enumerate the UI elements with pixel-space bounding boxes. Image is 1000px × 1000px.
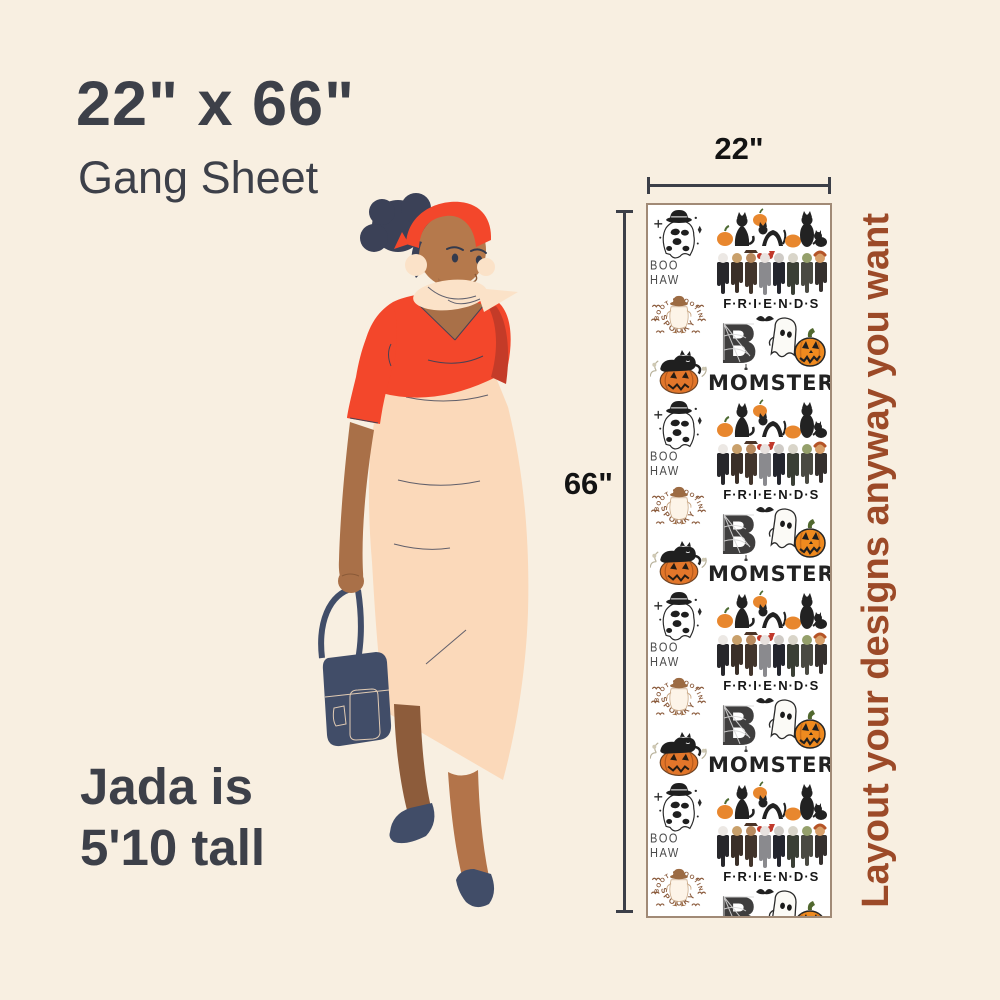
model-illustration bbox=[298, 192, 548, 957]
friends-label: F·R·I·E·N·D·S bbox=[723, 678, 819, 693]
friends-label: F·R·I·E·N·D·S bbox=[723, 869, 819, 884]
forearm bbox=[339, 422, 374, 591]
height-dimension-line bbox=[623, 210, 626, 913]
horror-characters-icon bbox=[715, 822, 827, 868]
momster-label: MOMSTER bbox=[708, 371, 832, 395]
boo-haw-label: BOO HAW bbox=[650, 450, 708, 479]
shoe-back bbox=[390, 803, 435, 843]
model-height-note: Jada is 5'10 tall bbox=[80, 756, 265, 878]
shoe-front bbox=[456, 869, 494, 907]
gang-sheet-preview: BOO HAW BOOT SCOOTIN' SPOOKY bbox=[646, 203, 832, 918]
skirt bbox=[369, 370, 528, 780]
page-subtitle: Gang Sheet bbox=[78, 152, 318, 204]
friends-label: F·R·I·E·N·D·S bbox=[723, 296, 819, 311]
boo-ghost-pumpkin-icon: B bbox=[716, 312, 826, 370]
horror-characters-icon bbox=[715, 631, 827, 677]
boo-haw-label: BOO HAW bbox=[650, 832, 708, 861]
boo-haw-ghost-icon bbox=[652, 399, 706, 450]
boo-ghost-pumpkin-icon: B bbox=[716, 885, 826, 918]
cat-on-pumpkin-icon bbox=[650, 729, 708, 778]
page-title: 22" x 66" bbox=[76, 68, 355, 140]
leg-front bbox=[448, 770, 489, 884]
width-dimension-line bbox=[647, 184, 831, 187]
black-cats-pumpkins-icon bbox=[715, 208, 827, 248]
model-height-line1: Jada is bbox=[80, 756, 265, 817]
friends-label: F·R·I·E·N·D·S bbox=[723, 487, 819, 502]
model-height-line2: 5'10 tall bbox=[80, 817, 265, 878]
height-dimension-label: 66" bbox=[533, 466, 613, 502]
boo-haw-ghost-icon bbox=[652, 590, 706, 641]
horror-characters-icon bbox=[715, 440, 827, 486]
earring-left bbox=[405, 254, 427, 276]
boo-haw-label: BOO HAW bbox=[650, 259, 708, 288]
boot-scootin-spooky-badge: BOOT SCOOTIN' SPOOKY bbox=[650, 860, 708, 917]
boo-ghost-pumpkin-icon: B bbox=[716, 694, 826, 752]
side-note: Layout your designs anyway you want bbox=[838, 203, 914, 918]
boo-haw-ghost-icon bbox=[652, 208, 706, 259]
cat-on-pumpkin-icon bbox=[650, 538, 708, 587]
gang-sheet-design-unit: BOO HAW BOOT SCOOTIN' SPOOKY bbox=[648, 587, 830, 778]
earring-right bbox=[477, 258, 495, 276]
boo-haw-label: BOO HAW bbox=[650, 641, 708, 670]
boo-ghost-pumpkin-icon: B bbox=[716, 503, 826, 561]
width-dimension-label: 22" bbox=[646, 131, 832, 167]
momster-label: MOMSTER bbox=[708, 753, 832, 777]
black-cats-pumpkins-icon bbox=[715, 399, 827, 439]
black-cats-pumpkins-icon bbox=[715, 781, 827, 821]
horror-characters-icon bbox=[715, 249, 827, 295]
boot-scootin-spooky-badge: BOOT SCOOTIN' SPOOKY bbox=[650, 287, 708, 344]
gang-sheet-design-unit: BOO HAW BOOT SCOOTIN' SPOOKY bbox=[648, 396, 830, 587]
hand bbox=[338, 569, 364, 593]
black-cats-pumpkins-icon bbox=[715, 590, 827, 630]
momster-label: MOMSTER bbox=[708, 562, 832, 586]
cat-on-pumpkin-icon bbox=[650, 347, 708, 396]
gang-sheet-design-unit: BOO HAW BOOT SCOOTIN' SPOOKY bbox=[648, 205, 830, 396]
side-note-text: Layout your designs anyway you want bbox=[857, 213, 895, 908]
boot-scootin-spooky-badge: BOOT SCOOTIN' SPOOKY bbox=[650, 669, 708, 726]
boo-haw-ghost-icon bbox=[652, 781, 706, 832]
boot-scootin-spooky-badge: BOOT SCOOTIN' SPOOKY bbox=[650, 478, 708, 535]
gang-sheet-design-unit: BOO HAW BOOT SCOOTIN' SPOOKY bbox=[648, 778, 830, 918]
